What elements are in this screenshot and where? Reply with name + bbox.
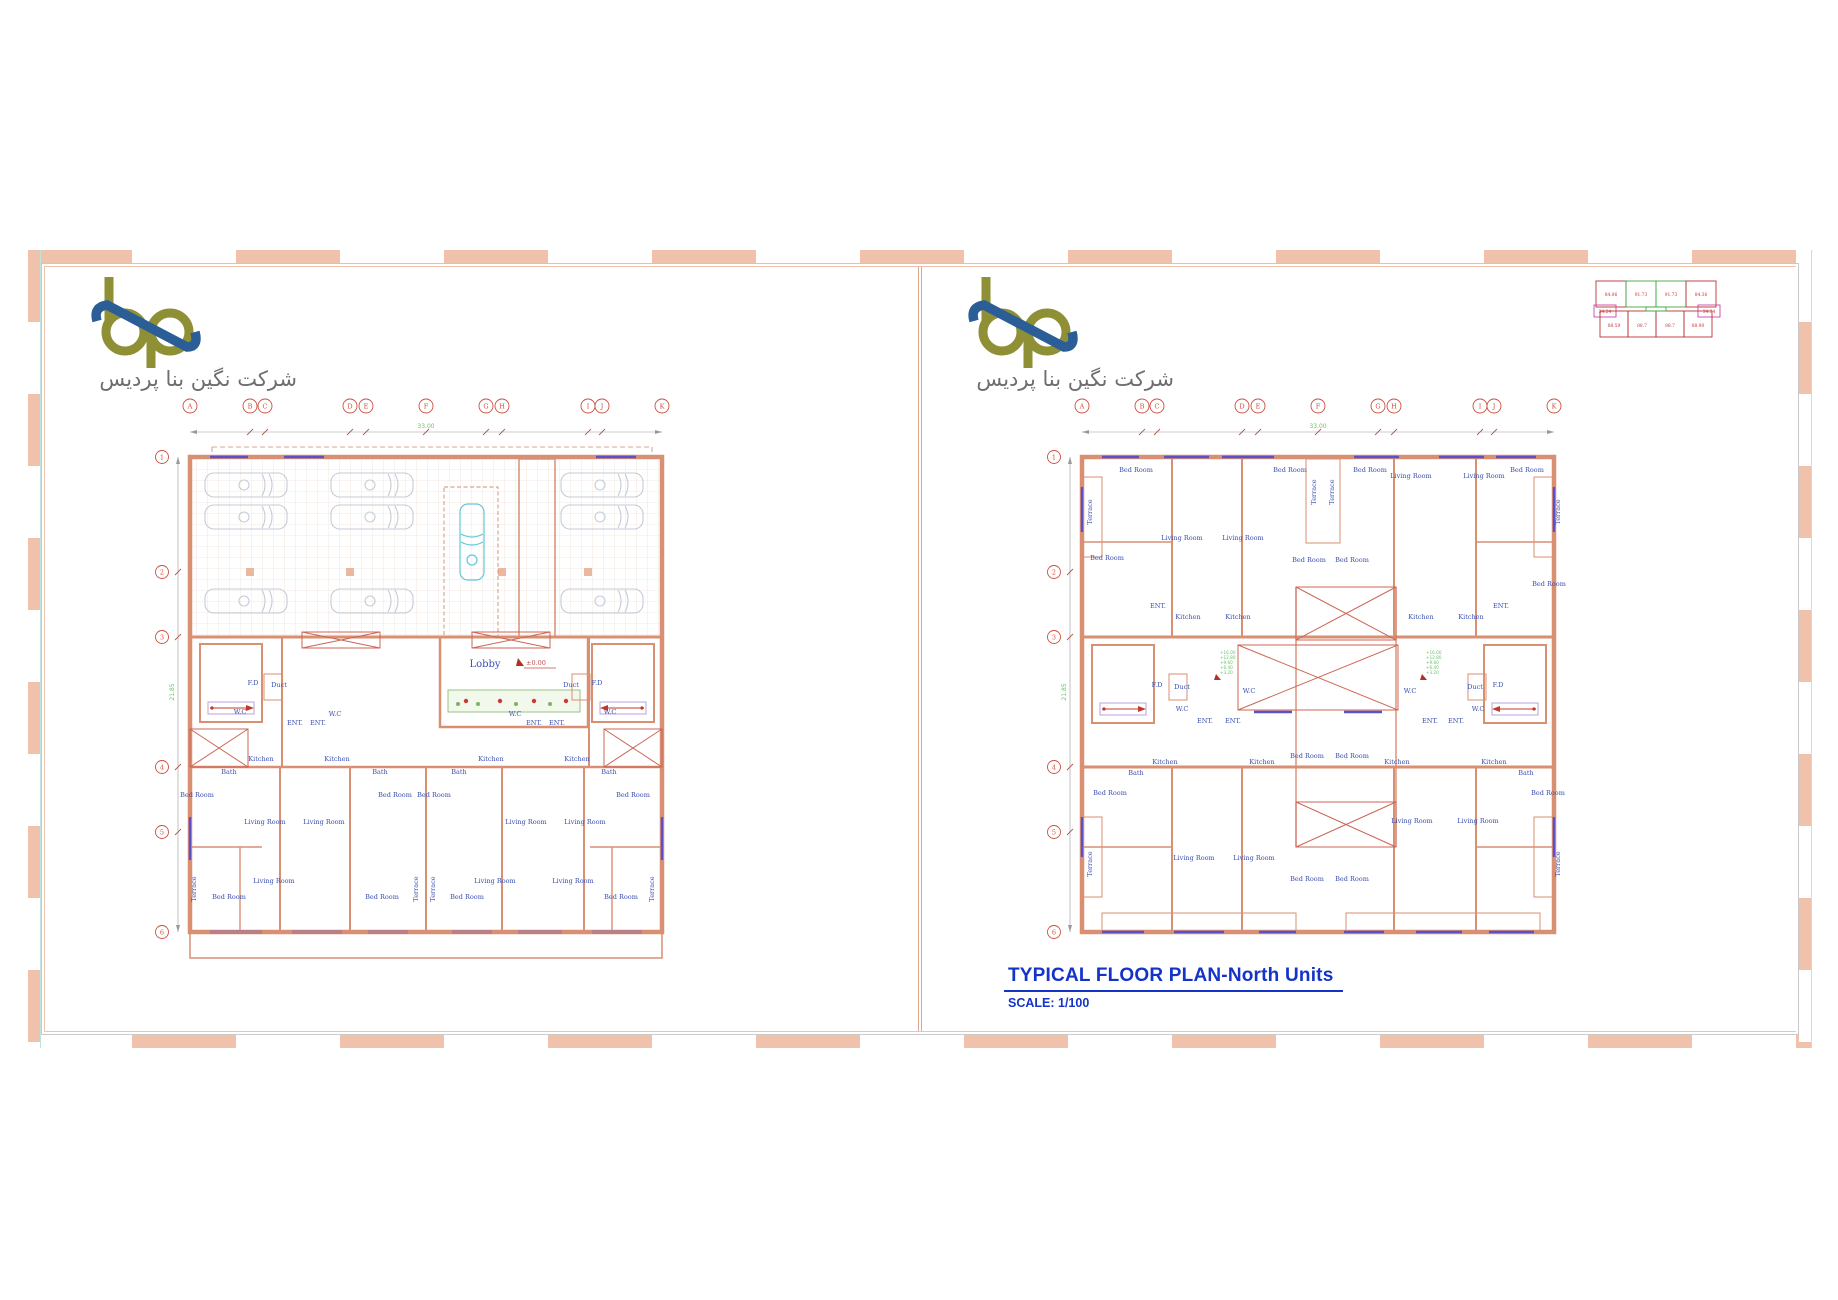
- room-label: ENT.: [1150, 602, 1166, 610]
- room-label: Bed Room: [212, 893, 246, 901]
- room-label: Kitchen: [1481, 758, 1506, 766]
- room-label: Terrace: [412, 876, 420, 901]
- room-label: Kitchen: [324, 755, 349, 763]
- room-label: ENT.: [1225, 717, 1241, 725]
- room-label: Living Room: [1463, 472, 1504, 480]
- typical-floor-plan: A B C D E F G H I J K: [1044, 392, 1744, 992]
- total-width-dim: 33.00: [417, 423, 434, 430]
- room-label: Bed Room: [1290, 752, 1324, 760]
- room-label: Bed Room: [1335, 875, 1369, 883]
- grid-number: 6: [1052, 929, 1056, 937]
- parking-area: [190, 459, 662, 637]
- room-label: ENT.: [1197, 717, 1213, 725]
- room-label: Bed Room: [616, 791, 650, 799]
- ground-floor-plan: A B C D E F G H I J K: [152, 392, 852, 992]
- room-label: Terrace: [429, 876, 437, 901]
- level-label: ±0.00: [526, 659, 546, 667]
- room-label: F.D: [1493, 681, 1504, 689]
- grid-letter: G: [483, 403, 488, 411]
- dimension-line-left: 21.85: [169, 457, 181, 932]
- drawing-sheet: شرکت نگین بنا پردیس: [28, 250, 1812, 1048]
- room-label: Bed Room: [378, 791, 412, 799]
- room-label: Terrace: [1328, 479, 1336, 504]
- room-label: ENT.: [549, 719, 565, 727]
- title-block: TYPICAL FLOOR PLAN-North Units SCALE: 1/…: [1004, 965, 1343, 1010]
- room-label: Kitchen: [478, 755, 503, 763]
- room-label: Terrace: [1310, 479, 1318, 504]
- room-label: W.C: [509, 710, 522, 718]
- sheet-frame-inner: شرکت نگین بنا پردیس: [44, 266, 1796, 1032]
- terrace-strip: [190, 932, 662, 958]
- unit-area: 91.73: [1665, 293, 1678, 298]
- room-label: Living Room: [1161, 534, 1202, 542]
- room-label: Kitchen: [1225, 613, 1250, 621]
- unit-area: 84.06: [1605, 293, 1618, 298]
- unit-area: 88.7: [1637, 324, 1647, 329]
- room-label: Living Room: [552, 877, 593, 885]
- room-label: Bed Room: [1353, 466, 1387, 474]
- room-label: Kitchen: [1458, 613, 1483, 621]
- room-label: Duct: [1174, 683, 1190, 691]
- room-label: W.C: [234, 708, 247, 716]
- room-label: F.D: [1152, 681, 1163, 689]
- room-label: ENT.: [526, 719, 542, 727]
- room-label: Bath: [1518, 769, 1533, 777]
- room-label: Living Room: [253, 877, 294, 885]
- page: شرکت نگین بنا پردیس: [0, 0, 1838, 1300]
- unit-area: 88.7: [1665, 324, 1675, 329]
- room-label: Living Room: [1391, 817, 1432, 825]
- room-label: W.C: [1243, 687, 1256, 695]
- room-label: Bed Room: [1510, 466, 1544, 474]
- room-label: Kitchen: [1408, 613, 1433, 621]
- grid-letter: E: [1256, 403, 1261, 411]
- unit-area: 88.90: [1692, 324, 1705, 329]
- grid-letter: H: [499, 403, 505, 411]
- room-label: Duct: [1467, 683, 1483, 691]
- grid-letter: A: [1079, 403, 1085, 411]
- grid-letter: I: [587, 403, 590, 411]
- grid-letter: J: [600, 403, 604, 411]
- room-label: Bed Room: [1090, 554, 1124, 562]
- room-label: Bath: [601, 768, 616, 776]
- unit-area: 34.34: [1703, 310, 1716, 315]
- grid-number: 3: [160, 634, 164, 642]
- grid-number: 5: [1052, 829, 1056, 837]
- row-grid-numbers: 1 2 3 4 5 6: [1048, 451, 1061, 939]
- stair-core-left: [1092, 645, 1154, 723]
- room-label: Living Room: [1457, 817, 1498, 825]
- grid-number: 4: [1052, 764, 1056, 772]
- room-label: W.C: [1404, 687, 1417, 695]
- room-label: Bed Room: [365, 893, 399, 901]
- room-label: Bed Room: [1273, 466, 1307, 474]
- room-label: Bed Room: [180, 791, 214, 799]
- grid-letter: G: [1375, 403, 1380, 411]
- grid-letter: H: [1391, 403, 1397, 411]
- grid-number: 2: [160, 569, 164, 577]
- room-label: Living Room: [303, 818, 344, 826]
- setback-dashed-line: [212, 447, 652, 456]
- room-label: Kitchen: [1384, 758, 1409, 766]
- level-annotations: +16.00 +12.80 +9.60 +6.40 +3.20 +16.00 +…: [1214, 650, 1442, 680]
- sheet-frame: شرکت نگین بنا پردیس: [41, 263, 1799, 1035]
- unit-area: 34.24: [1599, 310, 1612, 315]
- room-label: Bath: [372, 768, 387, 776]
- room-label: ENT.: [310, 719, 326, 727]
- room-label: Living Room: [564, 818, 605, 826]
- sheet-border-bottom: [28, 1035, 1812, 1048]
- grid-letter: D: [347, 403, 352, 411]
- column-grid-letters: A B C D E F G H I J K: [1075, 399, 1561, 413]
- room-label: Bath: [451, 768, 466, 776]
- room-label: Living Room: [505, 818, 546, 826]
- grid-letter: F: [1316, 403, 1321, 411]
- elevator-core: [1238, 587, 1398, 847]
- room-label: ENT.: [1493, 602, 1509, 610]
- room-label: Bed Room: [1093, 789, 1127, 797]
- total-height-dim: 21.85: [169, 683, 176, 700]
- grid-letter: K: [660, 403, 665, 411]
- room-label: Bed Room: [450, 893, 484, 901]
- company-name: شرکت نگین بنا پردیس: [934, 367, 1174, 391]
- room-label: Bed Room: [1335, 752, 1369, 760]
- room-label: Living Room: [1173, 854, 1214, 862]
- grid-letter: C: [1155, 403, 1160, 411]
- room-label: Bed Room: [1531, 789, 1565, 797]
- room-label: W.C: [604, 708, 617, 716]
- room-label: Kitchen: [248, 755, 273, 763]
- grid-number: 2: [1052, 569, 1056, 577]
- room-label: Living Room: [1222, 534, 1263, 542]
- company-logo: [962, 275, 1082, 371]
- room-label: Bed Room: [1532, 580, 1566, 588]
- grid-letter: B: [248, 403, 253, 411]
- grid-letter: A: [187, 403, 193, 411]
- room-label: Terrace: [1554, 851, 1562, 876]
- room-label: Kitchen: [1175, 613, 1200, 621]
- grid-letter: E: [364, 403, 369, 411]
- room-label: W.C: [1472, 705, 1485, 713]
- total-height-dim: 21.85: [1061, 683, 1068, 700]
- unit-area: 84.36: [1695, 293, 1708, 298]
- room-label: F.D: [248, 679, 259, 687]
- grid-letter: K: [1552, 403, 1557, 411]
- room-label: Bed Room: [417, 791, 451, 799]
- dimension-line-left: 21.85: [1061, 457, 1073, 932]
- dimension-line-top: 33.00: [190, 423, 662, 435]
- panel-ground-floor: شرکت نگین بنا پردیس: [45, 267, 919, 1031]
- room-label: Kitchen: [1249, 758, 1274, 766]
- room-label: ENT.: [1422, 717, 1438, 725]
- room-label: Bed Room: [1290, 875, 1324, 883]
- grid-letter: I: [1479, 403, 1482, 411]
- room-label: Duct: [271, 681, 287, 689]
- panel-typical-floor: شرکت نگین بنا پردیس 84.06: [921, 267, 1798, 1031]
- key-plan: 84.06 91.73 91.73 84.36 34.24 34.34 88.5…: [1591, 275, 1723, 343]
- room-label: F.D: [592, 679, 603, 687]
- column-grid-letters: A B C D E F G H I J K: [183, 399, 669, 413]
- room-label: ENT.: [1448, 717, 1464, 725]
- grid-letter: J: [1492, 403, 1496, 411]
- room-label: Bed Room: [604, 893, 638, 901]
- grid-number: 5: [160, 829, 164, 837]
- level-marker: [516, 658, 524, 666]
- room-label: W.C: [329, 710, 342, 718]
- room-label: Bath: [1128, 769, 1143, 777]
- level-value: +3.20: [1426, 670, 1439, 675]
- company-logo: [85, 275, 205, 371]
- room-label: Duct: [563, 681, 579, 689]
- lobby-label: Lobby: [469, 659, 500, 670]
- room-label: Living Room: [244, 818, 285, 826]
- room-label: Bed Room: [1292, 556, 1326, 564]
- room-label: Terrace: [1554, 499, 1562, 524]
- room-label: Bed Room: [1335, 556, 1369, 564]
- unit-area: 88.59: [1608, 324, 1621, 329]
- grid-number: 6: [160, 929, 164, 937]
- unit-area: 91.73: [1635, 293, 1648, 298]
- room-label: ENT.: [287, 719, 303, 727]
- room-label: Terrace: [648, 876, 656, 901]
- room-label: Living Room: [1233, 854, 1274, 862]
- room-label: Kitchen: [564, 755, 589, 763]
- room-label: Bed Room: [1119, 466, 1153, 474]
- grid-letter: C: [263, 403, 268, 411]
- grid-number: 4: [160, 764, 164, 772]
- sheet-border-top: [28, 250, 1812, 263]
- total-width-dim: 33.00: [1309, 423, 1326, 430]
- room-label: Terrace: [1086, 851, 1094, 876]
- drawing-title: TYPICAL FLOOR PLAN-North Units: [1004, 965, 1343, 992]
- grid-number: 1: [1052, 454, 1056, 462]
- level-value: +3.20: [1220, 670, 1233, 675]
- room-label: Terrace: [1086, 499, 1094, 524]
- row-grid-numbers: 1 2 3 4 5 6: [156, 451, 169, 939]
- room-label: W.C: [1176, 705, 1189, 713]
- room-label: Bath: [221, 768, 236, 776]
- grid-letter: B: [1140, 403, 1145, 411]
- room-label: Living Room: [1390, 472, 1431, 480]
- border-cyan-edge: [1811, 250, 1812, 1048]
- company-name: شرکت نگین بنا پردیس: [57, 367, 297, 391]
- drawing-scale: SCALE: 1/100: [1004, 996, 1343, 1010]
- grid-letter: F: [424, 403, 429, 411]
- room-label: Terrace: [190, 876, 198, 901]
- grid-letter: D: [1239, 403, 1244, 411]
- grid-number: 3: [1052, 634, 1056, 642]
- room-label: Living Room: [474, 877, 515, 885]
- grid-number: 1: [160, 454, 164, 462]
- dimension-line-top: 33.00: [1082, 423, 1554, 435]
- room-label: Kitchen: [1152, 758, 1177, 766]
